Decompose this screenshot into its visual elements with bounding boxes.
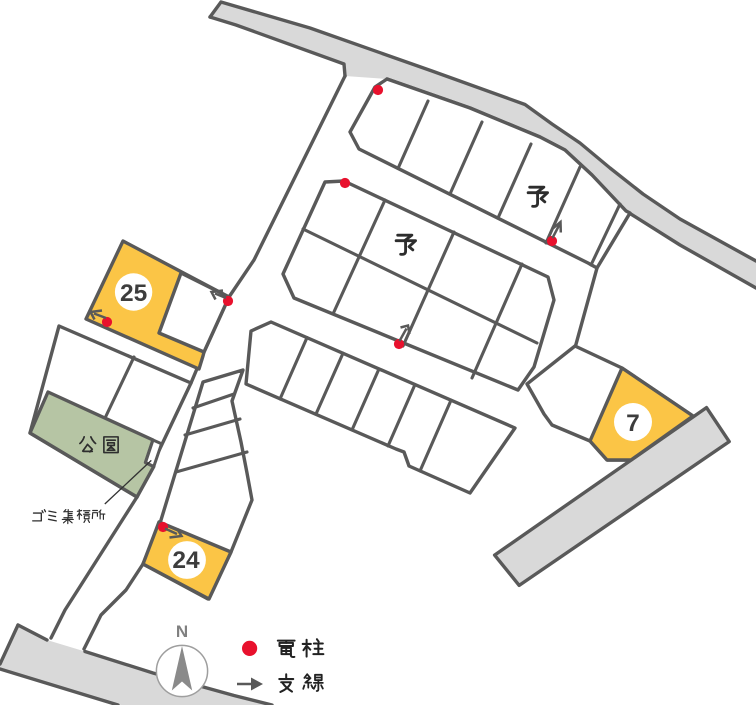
- svg-text:25: 25: [120, 280, 147, 307]
- svg-text:24: 24: [172, 547, 200, 574]
- svg-text:N: N: [176, 622, 188, 641]
- svg-text:7: 7: [626, 410, 640, 437]
